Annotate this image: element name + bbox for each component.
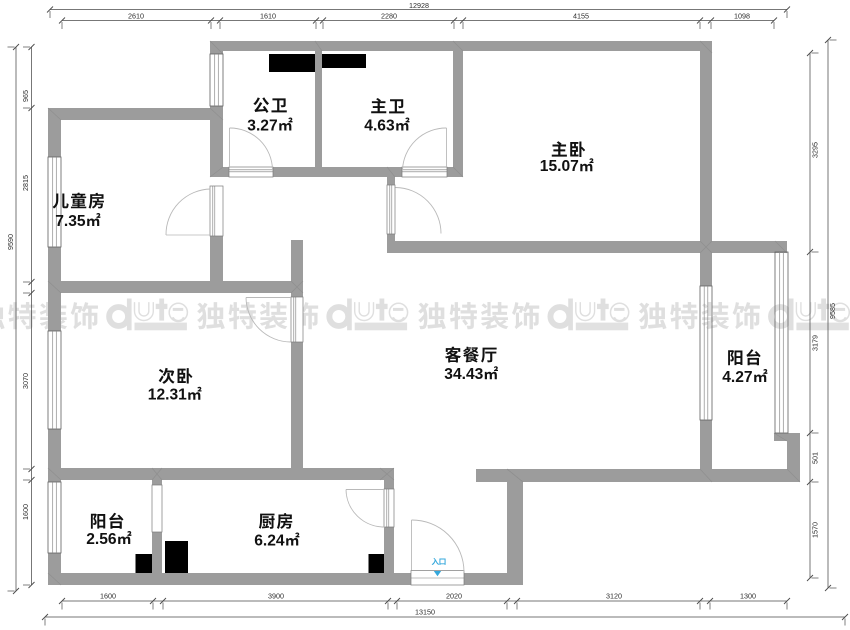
svg-text:3900: 3900 — [268, 592, 284, 601]
svg-text:6.24: 6.24 — [254, 533, 285, 550]
svg-text:2020: 2020 — [446, 592, 462, 601]
svg-text:9590: 9590 — [6, 234, 15, 250]
svg-text:2815: 2815 — [21, 175, 30, 191]
svg-text:965: 965 — [21, 90, 30, 102]
svg-text:1600: 1600 — [21, 504, 30, 520]
svg-text:12928: 12928 — [409, 1, 429, 10]
svg-text:1098: 1098 — [734, 12, 750, 21]
svg-text:3295: 3295 — [811, 142, 820, 158]
svg-text:2280: 2280 — [381, 12, 397, 21]
svg-text:9585: 9585 — [828, 303, 837, 319]
svg-text:13150: 13150 — [415, 608, 435, 617]
svg-text:34.43: 34.43 — [444, 366, 483, 383]
svg-text:3070: 3070 — [21, 373, 30, 389]
svg-text:3120: 3120 — [606, 592, 622, 601]
svg-text:501: 501 — [811, 452, 820, 464]
svg-text:4.27: 4.27 — [722, 369, 752, 386]
svg-text:15.07: 15.07 — [540, 158, 579, 175]
svg-text:2.56: 2.56 — [86, 531, 117, 548]
svg-text:12.31: 12.31 — [148, 387, 187, 404]
svg-text:3179: 3179 — [811, 335, 820, 351]
svg-text:7.35: 7.35 — [55, 213, 86, 230]
svg-text:4.63: 4.63 — [364, 118, 395, 135]
svg-text:3.27: 3.27 — [247, 118, 277, 135]
svg-text:2610: 2610 — [128, 12, 144, 21]
svg-text:1610: 1610 — [260, 12, 276, 21]
svg-text:1600: 1600 — [100, 592, 116, 601]
svg-text:1570: 1570 — [811, 522, 820, 538]
svg-text:4155: 4155 — [573, 12, 589, 21]
svg-text:1300: 1300 — [740, 592, 756, 601]
